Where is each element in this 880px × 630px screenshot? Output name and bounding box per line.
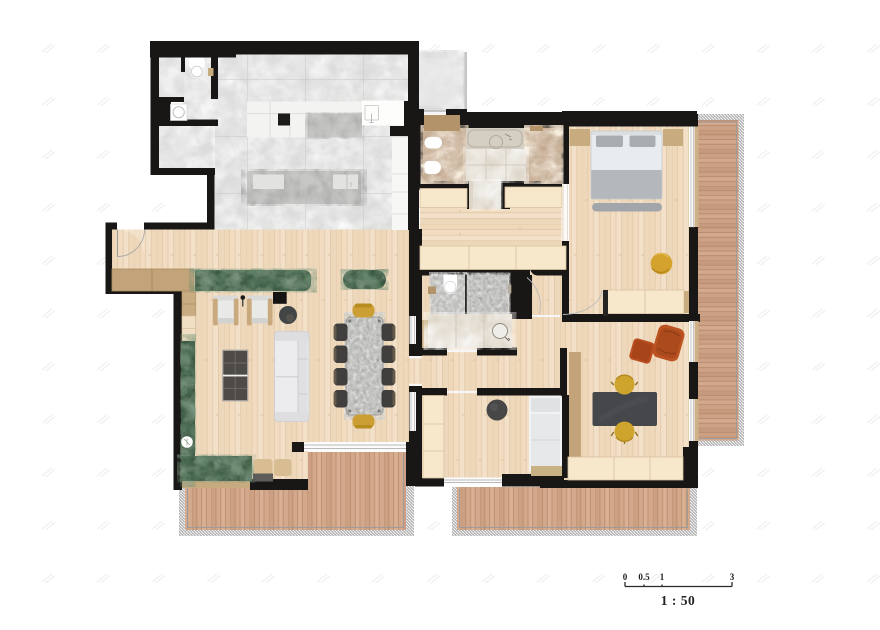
svg-text:1 : 50: 1 : 50 (661, 593, 696, 608)
svg-text:0: 0 (623, 572, 628, 582)
svg-text:0.5: 0.5 (638, 572, 650, 582)
svg-text:1: 1 (660, 572, 665, 582)
svg-text:3: 3 (730, 572, 735, 582)
